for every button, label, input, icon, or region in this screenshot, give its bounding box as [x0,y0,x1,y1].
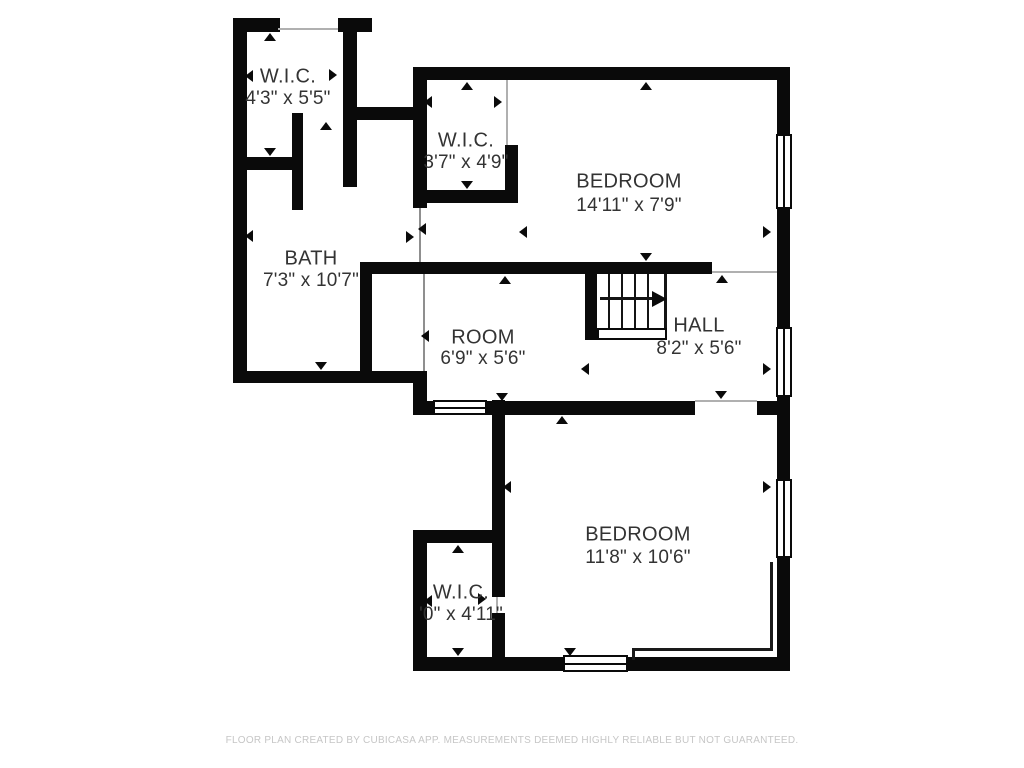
knee-vertical [770,562,773,651]
room-label-bedroom-top: BEDROOM [576,171,681,194]
arrow-wic2-left [424,96,432,108]
wall-corridor-top [355,107,417,120]
window-bedroom1-right [776,134,792,209]
arrow-wic2-bottom [461,181,473,189]
wall-top-outer [413,67,790,80]
arrow-bedroom1-bottom [640,253,652,261]
arrow-wic1-right [329,69,337,81]
arrow-door-pair-left [418,223,426,235]
opening-wic2-door [506,80,508,145]
window-bedroom2-right [776,479,792,558]
arrow-hall-top [716,275,728,283]
room-dims-wic-bottom: '0" x 4'11" [419,604,503,626]
room-dims-room: 6'9" x 5'6" [440,348,525,370]
arrow-bath-left [245,230,253,242]
floor-plan-canvas: W.I.C.4'3" x 5'5"W.I.C.3'7" x 4'9"BEDROO… [0,0,1024,768]
arrow-wic1-top [264,33,276,41]
wall-bottom-right [628,657,790,671]
room-dims-wic-top-left: 4'3" x 5'5" [245,88,330,110]
wall-wic2-bottom [420,190,518,203]
stair-direction-arrow-shaft [600,297,654,300]
wall-wic3-right-upper [492,530,505,597]
arrow-bedroom2-left [503,481,511,493]
room-dims-hall: 8'2" x 5'6" [656,338,741,360]
room-dims-wic-middle: 3'7" x 4'9" [423,152,508,174]
wall-room-bottom-left [413,401,433,415]
stair-wall-cap [585,328,597,340]
wall-nook-left [360,262,372,383]
arrow-room-left [421,330,429,342]
room-dims-bedroom-bottom: 11'8" x 10'6" [585,547,690,569]
arrow-bedroom1-top [640,82,652,90]
room-dims-bedroom-top: 14'11" x 7'9" [576,195,681,217]
wall-bed2-left [492,400,505,530]
wall-wic1-right [343,18,357,187]
arrow-wic3-top [452,545,464,553]
arrow-wic3-bottom [452,648,464,656]
wall-wic2-left [413,67,427,208]
wall-bottom-left [413,657,563,671]
wall-wic1-stub [292,113,303,210]
arrow-room-top [499,276,511,284]
window-hall-right [776,327,792,397]
footer-disclaimer: FLOOR PLAN CREATED BY CUBICASA APP. MEAS… [0,735,1024,746]
arrow-bedroom2-top [556,416,568,424]
room-label-hall: HALL [673,315,724,338]
room-label-bedroom-bottom: BEDROOM [585,524,690,547]
opening-hall-bedroom1 [712,271,777,273]
room-label-wic-middle: W.I.C. [438,130,494,153]
arrow-wic1-left [245,70,253,82]
knee-step [632,648,635,660]
stair-tread-line-0 [608,274,610,330]
arrow-bedroom1-left [519,226,527,238]
opening-hall-bedroom2-door [695,400,757,402]
arrow-wic1-bottom [264,148,276,156]
room-label-room: ROOM [451,327,514,350]
stair-tread-line-2 [634,274,636,330]
room-label-bath: BATH [284,248,337,271]
arrow-hall-left [581,363,589,375]
room-dims-bath: 7'3" x 10'7" [263,270,359,292]
arrow-bath-top [320,122,332,130]
arrow-wic2-right [494,96,502,108]
arrow-room-bottom [496,393,508,401]
arrow-hall-right [763,363,771,375]
window-bedroom2-bottom [563,655,628,672]
room-label-wic-bottom: W.I.C. [433,582,489,605]
window-room-bottom [433,400,487,415]
arrow-wic2-top [461,82,473,90]
wall-bath-bottom [233,371,427,383]
wall-room-hall-top [360,262,712,274]
arrow-bedroom1-right [763,226,771,238]
knee-horizontal [632,648,773,651]
opening-room-nook [423,274,425,371]
stair-direction-arrow-icon [652,291,667,307]
wall-room-hall-bottom [487,401,695,415]
arrow-hall-bottom [715,391,727,399]
arrow-bedroom2-bottom [564,648,576,656]
wall-hall-bottom-right [757,401,790,415]
stair-tread-line-1 [621,274,623,330]
arrow-bath-bottom [315,362,327,370]
opening-wic1-top [278,28,338,30]
wall-wic3-top [413,530,497,543]
arrow-bedroom2-right [763,481,771,493]
opening-bedroom1-entry [419,208,421,262]
room-label-wic-top-left: W.I.C. [260,66,316,89]
arrow-door-pair-right [406,231,414,243]
stair-tread-line-3 [647,274,649,330]
